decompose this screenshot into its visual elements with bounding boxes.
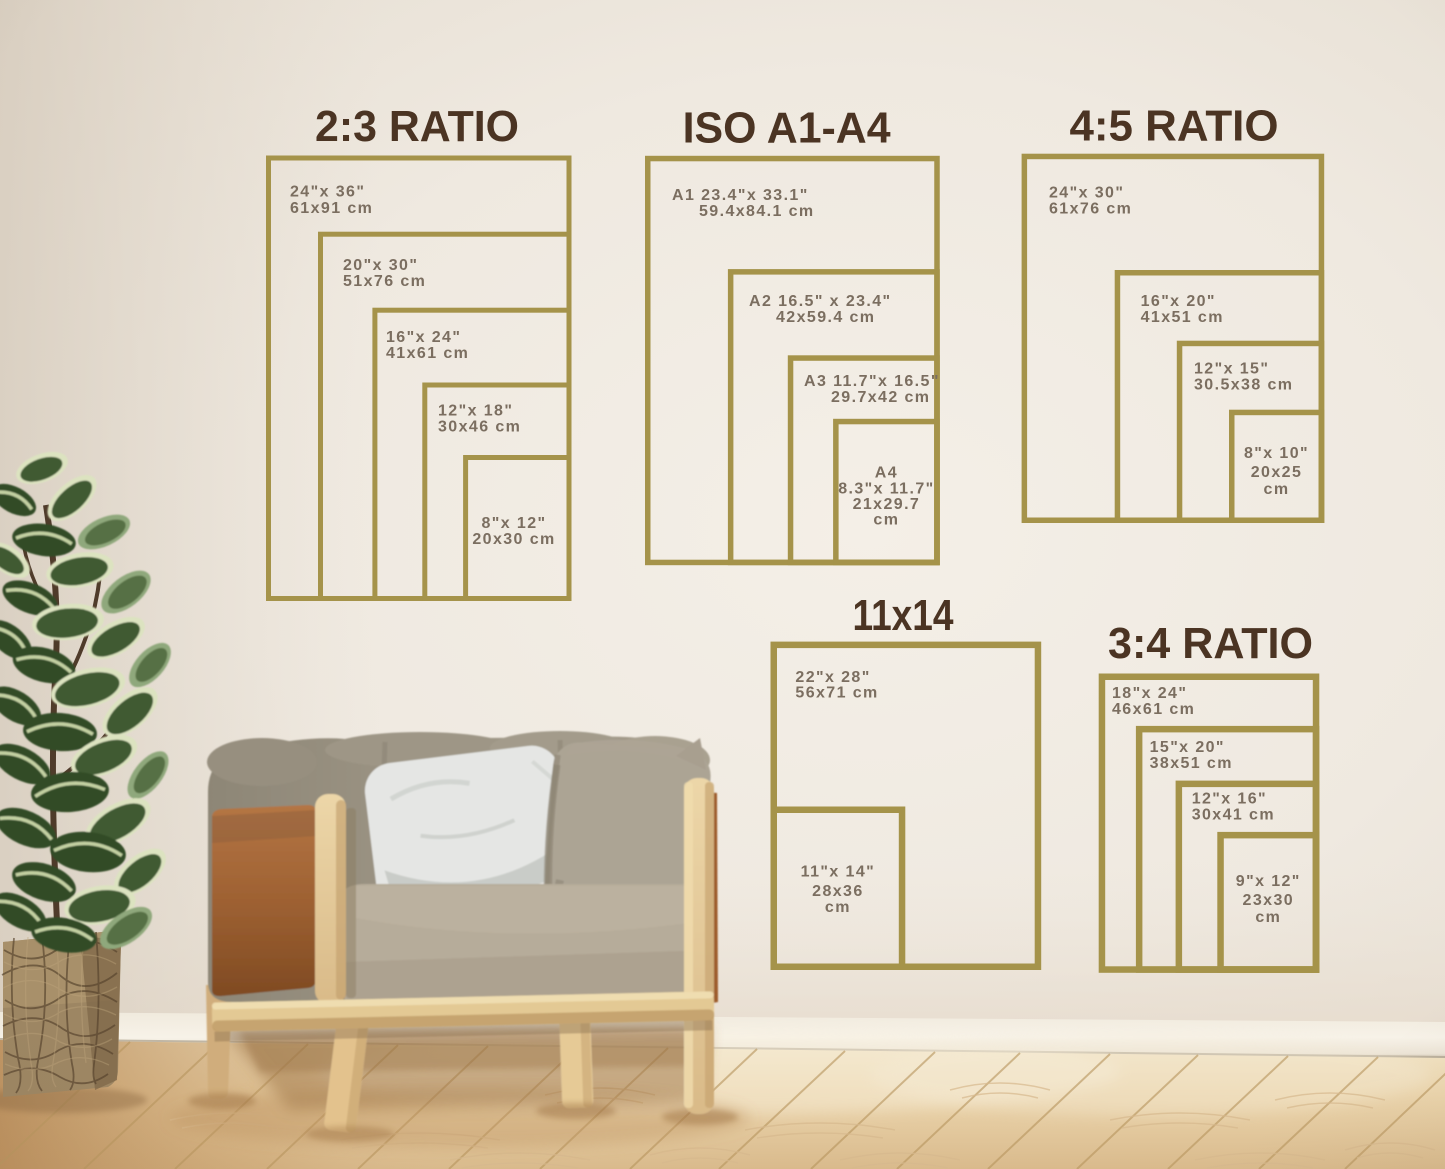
svg-text:4:5 RATIO: 4:5 RATIO <box>1070 102 1279 151</box>
svg-text:22"x 28": 22"x 28" <box>795 669 870 686</box>
svg-text:3:4 RATIO: 3:4 RATIO <box>1108 619 1313 668</box>
svg-text:24"x 30": 24"x 30" <box>1049 184 1124 201</box>
svg-text:42x59.4 cm: 42x59.4 cm <box>776 309 875 326</box>
svg-text:56x71 cm: 56x71 cm <box>795 685 878 702</box>
svg-text:29.7x42 cm: 29.7x42 cm <box>831 389 930 406</box>
svg-text:A4: A4 <box>875 465 898 482</box>
svg-text:cm: cm <box>1264 481 1290 498</box>
svg-text:cm: cm <box>825 899 851 916</box>
svg-text:8"x 10": 8"x 10" <box>1244 445 1309 462</box>
svg-text:ISO A1-A4: ISO A1-A4 <box>683 104 892 153</box>
svg-text:8"x 12": 8"x 12" <box>481 515 546 532</box>
svg-text:16"x 24": 16"x 24" <box>386 329 461 346</box>
svg-text:30.5x38 cm: 30.5x38 cm <box>1194 377 1293 394</box>
svg-text:15"x 20": 15"x 20" <box>1150 739 1225 756</box>
svg-text:2:3 RATIO: 2:3 RATIO <box>315 102 519 151</box>
svg-text:16"x 20": 16"x 20" <box>1141 293 1216 310</box>
svg-text:30x46 cm: 30x46 cm <box>438 419 521 436</box>
svg-text:8.3"x 11.7": 8.3"x 11.7" <box>838 481 934 498</box>
svg-text:11"x 14": 11"x 14" <box>801 863 875 880</box>
svg-text:12"x 18": 12"x 18" <box>438 403 513 420</box>
svg-text:18"x 24": 18"x 24" <box>1112 685 1187 702</box>
svg-text:A3 11.7"x 16.5": A3 11.7"x 16.5" <box>804 373 940 390</box>
svg-text:41x61 cm: 41x61 cm <box>386 345 469 362</box>
svg-text:A1 23.4"x 33.1": A1 23.4"x 33.1" <box>672 187 809 204</box>
svg-text:51x76 cm: 51x76 cm <box>343 273 426 290</box>
svg-text:9"x 12": 9"x 12" <box>1236 873 1301 890</box>
svg-text:30x41 cm: 30x41 cm <box>1192 806 1275 823</box>
svg-text:28x36: 28x36 <box>812 883 864 900</box>
svg-text:61x76 cm: 61x76 cm <box>1049 200 1132 217</box>
svg-text:24"x 36": 24"x 36" <box>290 184 365 201</box>
svg-text:11x14: 11x14 <box>853 591 954 640</box>
svg-text:59.4x84.1 cm: 59.4x84.1 cm <box>699 203 815 220</box>
svg-text:20x25: 20x25 <box>1251 464 1303 481</box>
svg-text:12"x 15": 12"x 15" <box>1194 361 1269 378</box>
svg-text:20x30 cm: 20x30 cm <box>472 531 555 548</box>
svg-text:41x51 cm: 41x51 cm <box>1141 309 1224 326</box>
svg-text:20"x 30": 20"x 30" <box>343 257 418 274</box>
svg-text:cm: cm <box>873 512 899 529</box>
svg-text:23x30: 23x30 <box>1243 892 1295 909</box>
svg-text:21x29.7: 21x29.7 <box>853 496 921 513</box>
svg-text:A2 16.5" x 23.4": A2 16.5" x 23.4" <box>749 293 892 310</box>
svg-text:61x91 cm: 61x91 cm <box>290 200 373 217</box>
svg-text:12"x 16": 12"x 16" <box>1192 790 1267 807</box>
svg-text:cm: cm <box>1255 909 1281 926</box>
svg-text:46x61 cm: 46x61 cm <box>1112 701 1195 718</box>
svg-text:38x51 cm: 38x51 cm <box>1150 755 1233 772</box>
